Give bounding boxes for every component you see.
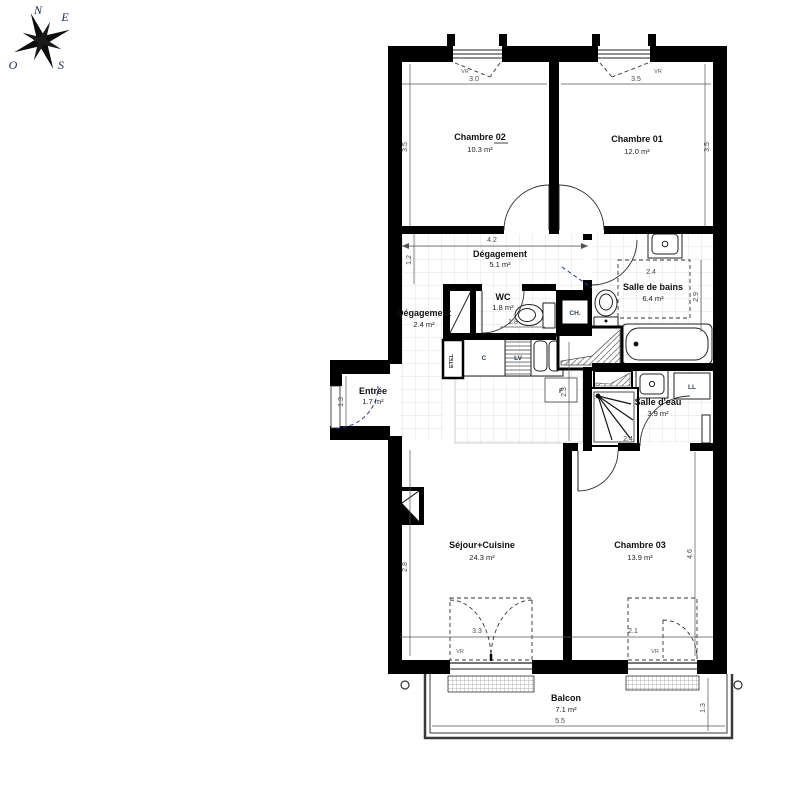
wall xyxy=(532,660,628,674)
dim-sejour-window: 3.3 xyxy=(472,628,482,635)
balcony-post-right xyxy=(734,681,742,689)
room-area-wc: 1.8 m² xyxy=(492,303,514,312)
chambre01-door-swing xyxy=(559,185,604,230)
wall xyxy=(330,360,390,374)
wall xyxy=(522,284,556,291)
chambre01-shutter-mark xyxy=(600,63,648,77)
chambre03-window-sill xyxy=(626,676,699,690)
sdb-toilet-icon xyxy=(594,290,618,328)
chambre03-window-outline xyxy=(628,598,697,660)
compass-east-label: E xyxy=(60,10,69,24)
wall xyxy=(502,46,598,62)
vr-label-chambre01: VR xyxy=(654,69,662,75)
room-area-sejour: 24.3 m² xyxy=(469,553,495,562)
wall-stub xyxy=(592,34,600,46)
room-label-salle-de-bains: Salle de bains xyxy=(623,282,683,292)
wall xyxy=(604,226,713,234)
room-area-chambre01: 12.0 m² xyxy=(624,147,650,156)
dim-sdb-width: 2.4 xyxy=(646,269,656,276)
dim-arrow xyxy=(581,243,588,249)
balcony-post-left xyxy=(401,681,409,689)
wall xyxy=(388,436,402,674)
wall-stub xyxy=(499,34,507,46)
room-label-balcon: Balcon xyxy=(551,693,581,703)
room-label-entree: Entrée xyxy=(359,386,387,396)
wall xyxy=(400,226,504,234)
vr-label-chambre02: VR xyxy=(461,69,469,75)
vr-label-sejour: VR xyxy=(456,649,464,655)
wall xyxy=(583,234,592,240)
compass-rose: N E O S xyxy=(3,2,81,80)
wall xyxy=(618,443,640,451)
washing-machine-label: LL xyxy=(688,384,696,391)
wall xyxy=(713,46,727,674)
dim-degagement-width: 4.2 xyxy=(487,237,497,244)
room-area-salle-deau: 3.9 m² xyxy=(647,409,669,418)
dim-salle-deau-width: 2.4 xyxy=(623,436,633,443)
etel-label: ETEL xyxy=(449,353,455,368)
dim-degagement-height: 1.2 xyxy=(406,255,413,265)
floor-plan-page: N E O S xyxy=(0,0,810,800)
cupboard-label: C xyxy=(482,355,487,362)
chambre01-window xyxy=(598,46,650,62)
fridge-label: F xyxy=(559,388,563,395)
sejour-window-sill xyxy=(448,676,534,692)
chambre02-window xyxy=(453,46,502,62)
room-label-chambre02: Chambre 02 xyxy=(454,132,506,142)
technical-shaft-small xyxy=(594,371,632,388)
sejour-window xyxy=(450,660,532,674)
dim-chambre03-height: 4.6 xyxy=(687,549,694,559)
chambre03-window xyxy=(628,660,697,674)
salle-deau-wall-element xyxy=(702,415,710,443)
room-area-chambre02: 10.3 m² xyxy=(467,145,493,154)
dim-chambre01-width: 3.5 xyxy=(631,76,641,83)
wall-bedroom-divider xyxy=(549,62,559,234)
room-label-sejour: Séjour+Cuisine xyxy=(449,540,515,550)
floor-plan-drawing: N E O S xyxy=(0,0,810,800)
compass-north-label: N xyxy=(33,3,43,17)
room-label-degagement2: Dégagement xyxy=(397,308,451,318)
dim-entree-height: 1.3 xyxy=(338,397,345,407)
dim-chambre02-height: 3.5 xyxy=(402,142,409,152)
room-area-entree: 1.7 m² xyxy=(362,397,384,406)
dim-balcon-height: 1.3 xyxy=(700,703,707,713)
chambre03-door-swing xyxy=(578,451,618,491)
dim-balcon-width: 5.5 xyxy=(555,718,565,725)
vr-label-chambre03: VR xyxy=(651,649,659,655)
dim-sdb-height: 2.9 xyxy=(693,292,700,302)
dim-chambre01-height: 3.5 xyxy=(704,142,711,152)
room-area-balcon: 7.1 m² xyxy=(555,705,577,714)
wall xyxy=(388,660,450,674)
wall xyxy=(563,443,572,660)
closet-icon xyxy=(449,289,472,335)
wall xyxy=(690,443,713,451)
water-heater-label: CH. xyxy=(569,310,580,317)
room-area-degagement2: 2.4 m² xyxy=(413,320,435,329)
room-area-chambre03: 13.9 m² xyxy=(627,553,653,562)
dim-chambre02-width: 3.0 xyxy=(469,76,479,83)
chambre02-door-swing xyxy=(504,185,549,230)
room-label-salle-deau: Salle d'eau xyxy=(635,397,682,407)
room-label-wc: WC xyxy=(496,292,511,302)
bathtub-icon xyxy=(622,324,712,364)
dishwasher-label: LV xyxy=(514,355,522,362)
sejour-french-door-swing-right xyxy=(491,600,532,658)
wall-stub xyxy=(447,34,455,46)
wall xyxy=(470,288,476,336)
room-label-degagement1: Dégagement xyxy=(473,249,527,259)
chambre03-window-swing xyxy=(663,620,697,658)
dim-wc-width: 1.8 xyxy=(508,319,518,326)
salle-deau-washbasin-icon xyxy=(636,370,668,398)
wall xyxy=(592,363,713,371)
room-label-chambre01: Chambre 01 xyxy=(611,134,663,144)
wall xyxy=(330,374,342,386)
compass-south-label: S xyxy=(58,58,64,72)
wall xyxy=(443,333,556,340)
dim-chambre03-window: 2.1 xyxy=(628,628,638,635)
wall-stub xyxy=(648,34,656,46)
room-label-chambre03: Chambre 03 xyxy=(614,540,666,550)
wall xyxy=(583,367,592,451)
dim-sejour-height: 2.8 xyxy=(402,562,409,572)
room-area-degagement1: 5.1 m² xyxy=(489,260,511,269)
compass-west-label: O xyxy=(9,58,18,72)
room-area-salle-de-bains: 6.4 m² xyxy=(642,294,664,303)
